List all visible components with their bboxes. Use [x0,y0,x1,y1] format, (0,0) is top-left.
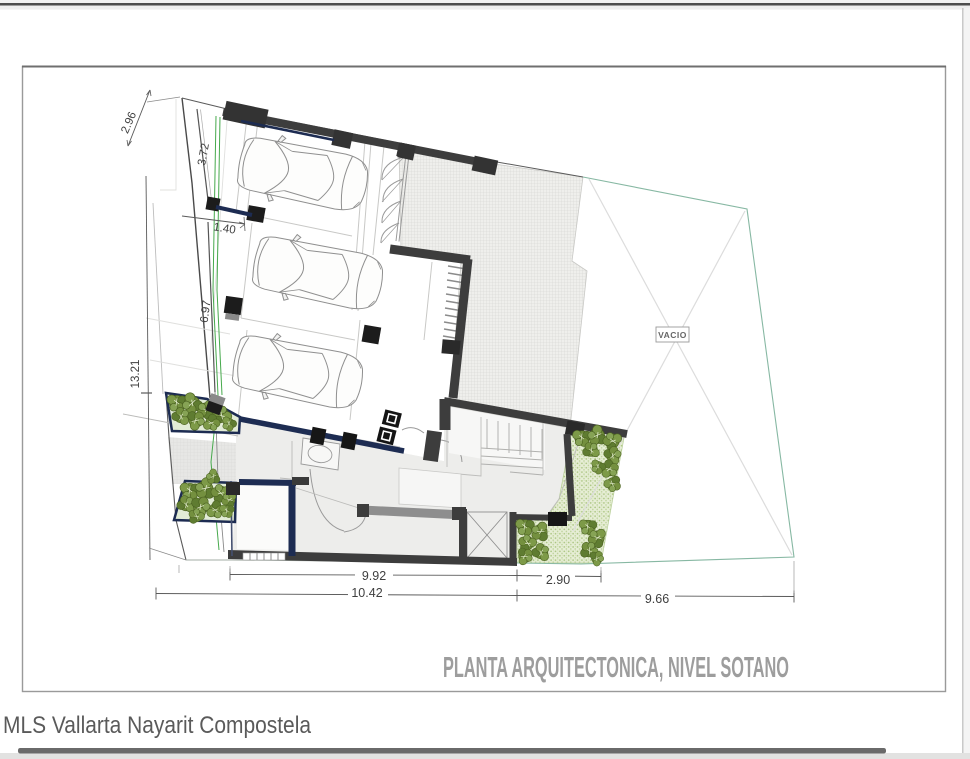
svg-text:9.92: 9.92 [362,569,386,583]
svg-text:VACIO: VACIO [658,330,687,340]
svg-text:PLANTA ARQUITECTONICA, NIVEL S: PLANTA ARQUITECTONICA, NIVEL SOTANO [443,652,789,684]
svg-text:MLS Vallarta Nayarit Compostel: MLS Vallarta Nayarit Compostela [3,712,312,739]
svg-text:13.21: 13.21 [130,360,142,389]
svg-text:10.42: 10.42 [351,586,382,600]
svg-text:2.90: 2.90 [546,573,570,587]
svg-text:9.66: 9.66 [645,592,669,606]
